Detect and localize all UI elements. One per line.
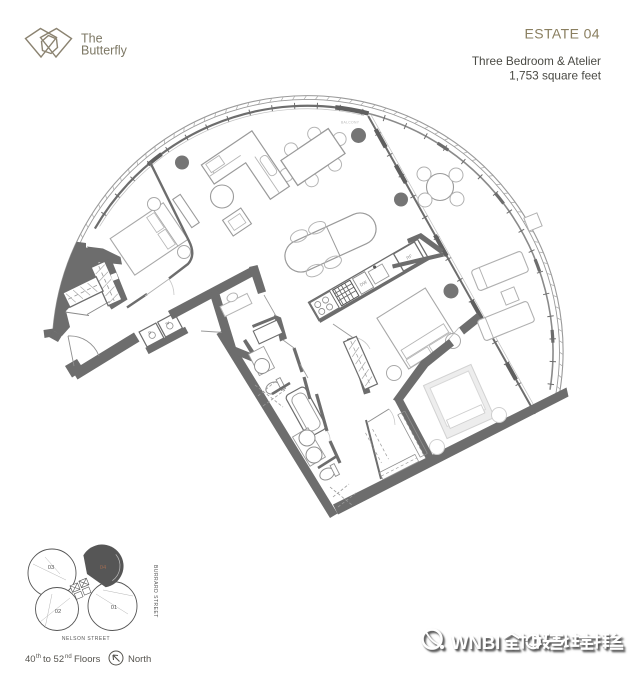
svg-text:02: 02 [55, 609, 61, 615]
svg-text:NELSON STREET: NELSON STREET [62, 636, 110, 642]
svg-text:40: 40 [25, 654, 36, 665]
svg-text:th: th [36, 654, 41, 660]
svg-text:WNBI: WNBI [451, 632, 500, 653]
svg-text:nd: nd [65, 654, 72, 660]
svg-text:BURRARD STREET: BURRARD STREET [152, 565, 158, 618]
svg-text:04: 04 [100, 565, 107, 571]
svg-text:North: North [128, 654, 151, 665]
svg-text:to 52: to 52 [43, 654, 64, 665]
svg-text:03: 03 [48, 565, 54, 571]
svg-text:01: 01 [111, 605, 117, 611]
svg-text:Floors: Floors [74, 654, 101, 665]
